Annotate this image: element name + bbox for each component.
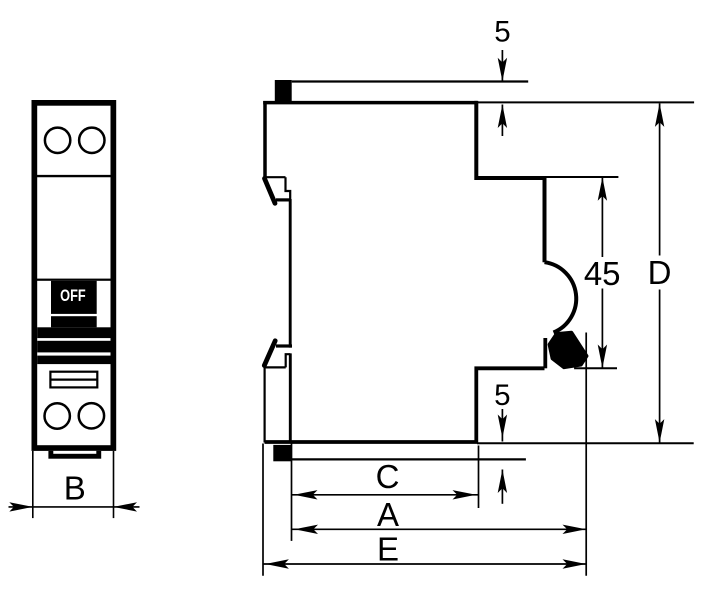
svg-text:5: 5 [494, 379, 510, 412]
svg-text:C: C [376, 458, 400, 495]
svg-text:45: 45 [584, 255, 621, 292]
svg-text:A: A [377, 496, 399, 533]
svg-text:E: E [377, 531, 399, 568]
svg-text:B: B [64, 469, 86, 506]
svg-text:OFF: OFF [60, 286, 85, 305]
svg-text:5: 5 [494, 16, 510, 49]
svg-text:D: D [648, 254, 672, 291]
